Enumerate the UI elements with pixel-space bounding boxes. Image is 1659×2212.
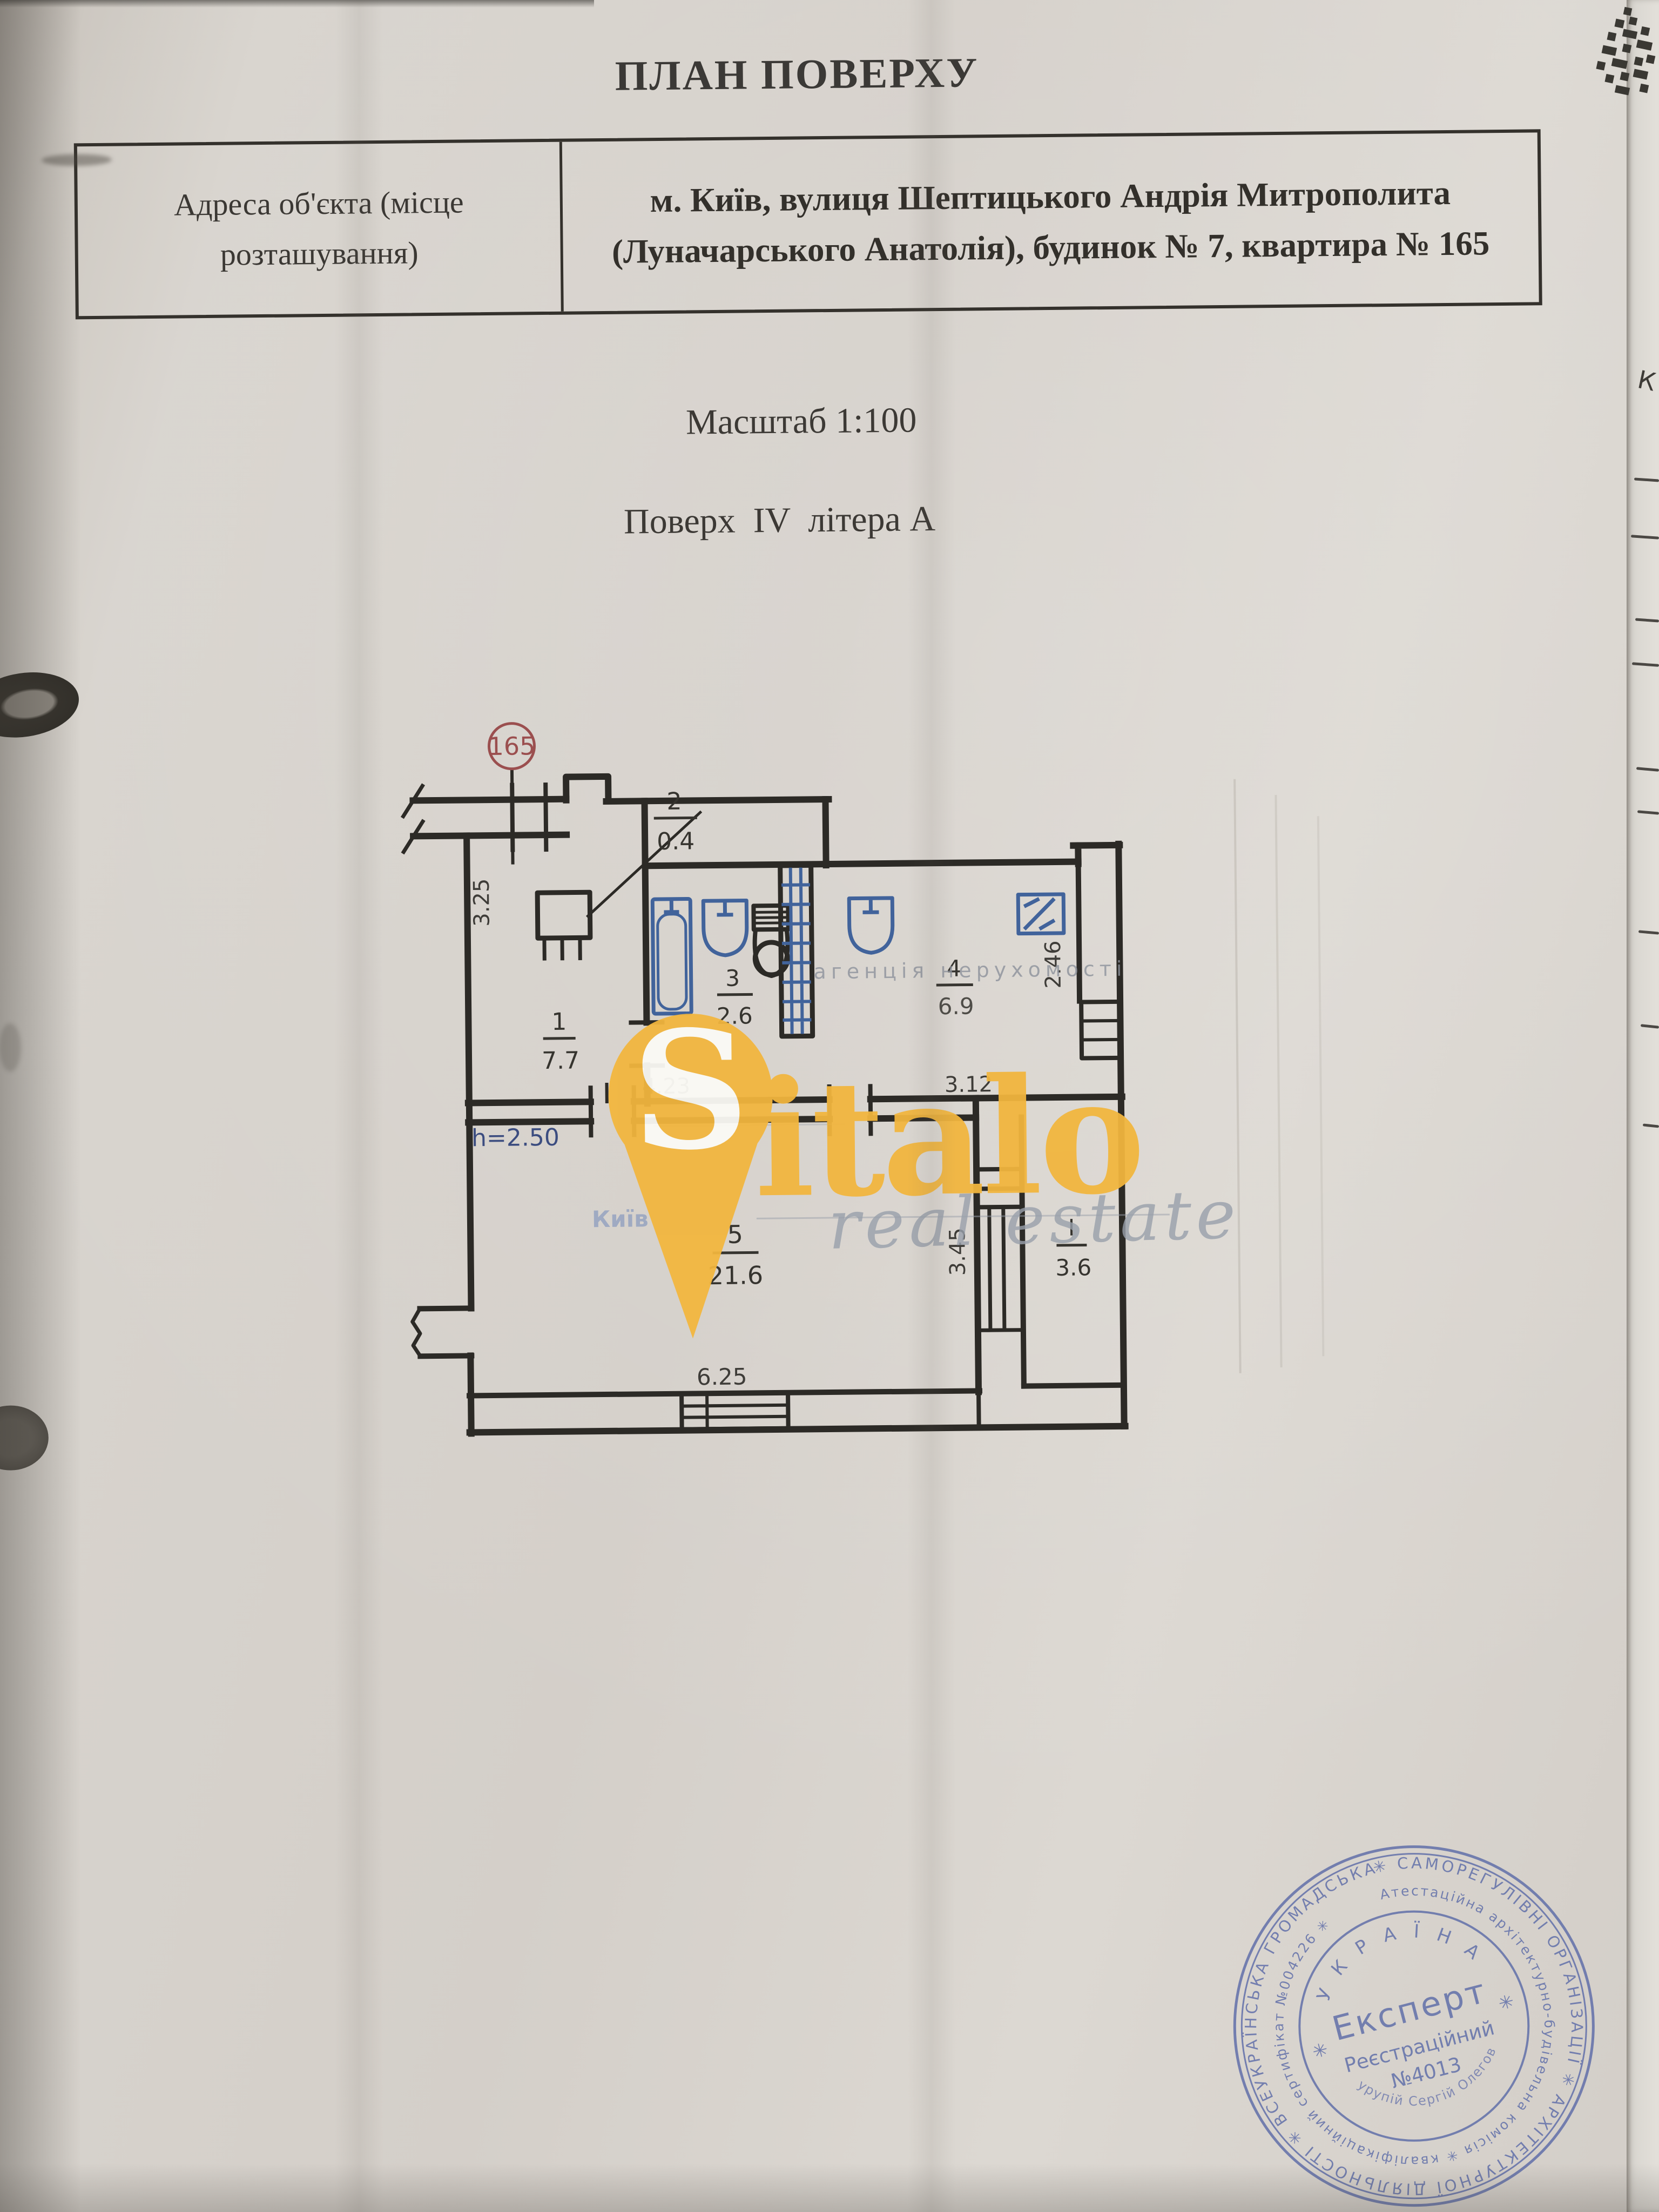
address-value-line2: (Луначарського Анатолія), будинок № 7, к… — [563, 217, 1539, 278]
balcony-left-wall — [976, 1098, 979, 1392]
underpage-line-stub — [1632, 662, 1659, 666]
dim-mid-left: 4.23 — [642, 1074, 691, 1099]
qr-code-fragment-icon — [1591, 5, 1659, 100]
binder-hole-shadow-icon — [0, 1405, 49, 1471]
underlying-page-edge: К — [1627, 0, 1659, 2212]
stamp-star-left: ✳ — [1310, 2039, 1331, 2063]
page-title: ПЛАН ПОВЕРХУ — [0, 42, 1627, 106]
room2-number: 2 — [666, 788, 682, 815]
room3-area: 2.6 — [717, 1002, 753, 1029]
floor-plan-drawing: 165 1 7.7 2 0.4 3 2.6 4 6.9 5 21.6 I — [376, 714, 1221, 1533]
paper-crease-2 — [907, 0, 956, 2212]
dim-bottom: 6.25 — [697, 1364, 747, 1391]
photographed-document: ПЛАН ПОВЕРХУ Адреса об'єкта (місце розта… — [0, 0, 1659, 2212]
wall-bump — [566, 777, 608, 800]
bleed-line-2 — [1274, 795, 1282, 1367]
underpage-line-stub — [1635, 618, 1659, 622]
underpage-line-stub — [1631, 535, 1659, 539]
bottom-wall-outer — [470, 1426, 1125, 1433]
address-table: Адреса об'єкта (місце розташування) м. К… — [74, 129, 1542, 319]
bottom-window-block — [682, 1393, 788, 1429]
paper-smudge-2 — [0, 1023, 21, 1071]
kitchen-sink-tap-icon — [862, 898, 879, 912]
room1-right-wall — [644, 801, 647, 1103]
balcony-number: I — [1068, 1215, 1075, 1241]
underpage-line-stub — [1643, 1123, 1659, 1128]
dim-left: 3.25 — [469, 878, 495, 927]
balcony-window-lines — [977, 1207, 1023, 1331]
scale-label: Масштаб 1:100 — [0, 393, 1631, 450]
left-notch — [420, 1308, 471, 1356]
address-value-line1: м. Київ, вулиця Шептицького Андрія Митро… — [562, 166, 1538, 227]
top-step-wall — [825, 799, 826, 865]
wall-break-symbol-left — [413, 1309, 421, 1356]
middle-wall-upper — [468, 1097, 1122, 1103]
apartment-leader-line — [512, 771, 513, 863]
stove-symbol — [1024, 899, 1055, 929]
expert-stamp: ✳ САМОРЕГУЛІВНІ ОРГАНІЗАЦІЇ ✳ АРХІТЕКТУР… — [1223, 1835, 1605, 2212]
balcony-inner-wall — [1021, 1117, 1024, 1386]
room3-number: 3 — [725, 965, 740, 992]
paper-crease-1 — [335, 0, 383, 2212]
kitchen-duct-wall — [1078, 864, 1080, 1001]
bleed-line-3 — [1317, 816, 1325, 1356]
dim-right: 2.46 — [1041, 940, 1066, 989]
room2-area: 0.4 — [657, 827, 694, 855]
room1-area: 7.7 — [542, 1047, 579, 1075]
underpage-line-stub — [1638, 930, 1659, 934]
balcony-area: 3.6 — [1055, 1254, 1091, 1281]
right-outer-wall — [1118, 844, 1124, 1426]
floor-label: Поверх IV літера А — [0, 492, 1609, 549]
balcony-door-rungs — [976, 1169, 1022, 1208]
balcony-floor-wall — [1024, 1385, 1124, 1386]
dim-ceiling-height: h=2.50 — [471, 1124, 559, 1152]
apartment-number-badge: 165 — [488, 723, 536, 769]
kitchen-top-right-wall — [1073, 845, 1120, 864]
bleed-line-1 — [1233, 779, 1242, 1373]
closet-door-ticks — [544, 938, 580, 959]
room5-number: 5 — [727, 1220, 743, 1249]
top-wall — [606, 799, 828, 801]
bottom-right-connect — [979, 1391, 979, 1427]
stamp-star-right: ✳ — [1496, 1990, 1516, 2015]
middle-wall-ticks — [591, 1085, 871, 1136]
wall-break-symbol-top — [403, 786, 423, 852]
bottom-window-lines — [682, 1393, 788, 1429]
apartment-number: 165 — [488, 731, 535, 761]
address-label-line2: розташування) — [78, 227, 561, 281]
bath-sink-tap-icon — [717, 901, 733, 915]
entry-wall — [413, 799, 567, 837]
kitchen-window-radiator — [1081, 1002, 1121, 1058]
bathtub-inner — [658, 914, 687, 1009]
address-value-cell: м. Київ, вулиця Шептицького Андрія Митро… — [562, 132, 1539, 311]
bathroom-door-ticks — [631, 1022, 663, 1066]
paper-sheet: ПЛАН ПОВЕРХУ Адреса об'єкта (місце розта… — [0, 0, 1659, 2212]
middle-wall-lower — [468, 1117, 976, 1122]
entry-door-ticks — [512, 785, 546, 850]
room1-number: 1 — [551, 1008, 567, 1036]
room5-area: 21.6 — [707, 1260, 763, 1290]
address-label-cell: Адреса об'єкта (місце розташування) — [77, 142, 564, 316]
underpage-letter: К — [1635, 365, 1658, 397]
closet-outline — [537, 892, 590, 938]
block-top-wall — [645, 862, 1078, 866]
address-label-line1: Адреса об'єкта (місце — [77, 177, 560, 231]
underpage-line-stub — [1636, 767, 1659, 772]
radiator-lines — [1081, 1021, 1120, 1040]
underpage-line-stub — [1634, 477, 1659, 482]
underpage-line-stub — [1641, 1024, 1659, 1029]
underpage-line-stub — [1637, 810, 1659, 814]
binder-hole-icon — [0, 665, 83, 745]
